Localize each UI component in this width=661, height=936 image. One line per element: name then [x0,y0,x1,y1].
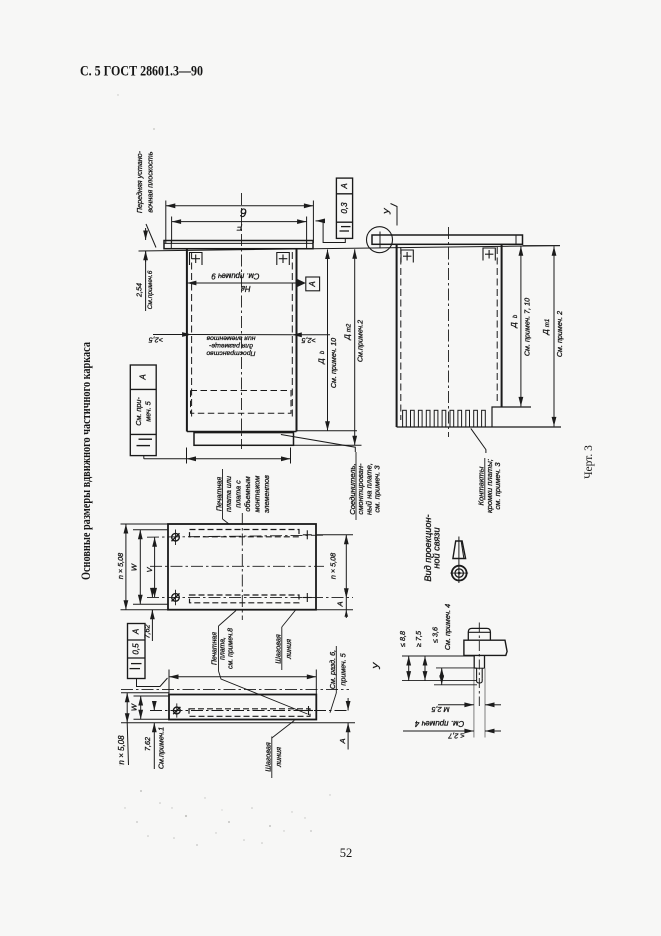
svg-text:7,62: 7,62 [142,625,151,639]
svg-text:0,5: 0,5 [132,643,141,655]
svg-text:см. примеч. 3: см. примеч. 3 [373,465,382,513]
svg-text:См. примеч 9: См. примеч 9 [211,272,260,281]
svg-text:Шаговая: Шаговая [264,742,273,772]
svg-text:плата с: плата с [234,480,243,508]
svg-text:См. примеч. 2: См. примеч. 2 [555,311,564,357]
svg-text:для размеще-: для размеще- [208,342,253,350]
svg-text:≤ 3,6: ≤ 3,6 [431,627,440,643]
svg-text:См.примеч.2: См.примеч.2 [356,320,365,362]
svg-text:0,3: 0,3 [340,202,349,214]
svg-text:примеч. 5: примеч. 5 [339,652,348,685]
svg-text:A: A [338,738,347,744]
svg-text:т1: т1 [545,319,551,327]
svg-text:A: A [340,183,349,189]
svg-text:≥ 7,5: ≥ 7,5 [414,630,423,647]
svg-text:См. примеч. 10: См. примеч. 10 [329,338,338,388]
svg-text:См. примеч 4: См. примеч 4 [414,719,464,728]
svg-text:≤ 2,7: ≤ 2,7 [447,732,464,741]
svg-text:W: W [130,703,139,711]
svg-text:см. примеч. 3: см. примеч. 3 [493,462,502,510]
svg-text:плата,: плата, [220,637,227,660]
svg-text:A: A [335,601,344,607]
svg-text:A: A [308,281,317,287]
svg-text:52: 52 [340,846,353,860]
svg-text:линия: линия [274,747,283,768]
svg-text:См. примеч. 7, 10: См. примеч. 7, 10 [523,298,532,356]
svg-text:См. примеч. 4: См. примеч. 4 [443,604,452,650]
svg-text:Передняя устано-: Передняя устано- [135,150,144,213]
svg-text:ния элементов: ния элементов [206,335,255,342]
svg-text:плата или: плата или [224,476,233,512]
svg-text:вочная плоскость: вочная плоскость [145,151,154,212]
svg-text:7,62: 7,62 [143,737,152,751]
svg-text:М 2,5: М 2,5 [431,705,450,714]
svg-text:монтажом: монтажом [253,476,262,513]
svg-text:См. при-: См. при- [134,397,143,426]
svg-text:6: 6 [240,206,247,220]
svg-text:2,54: 2,54 [135,283,144,298]
svg-text:F: F [236,223,242,233]
svg-text:Пространство: Пространство [206,350,255,357]
svg-text:С. 5 ГОСТ 28601.3—90: С. 5 ГОСТ 28601.3—90 [80,63,203,79]
svg-text:Черт. 3: Черт. 3 [583,445,595,479]
svg-text:Д: Д [343,334,352,341]
svg-text:См.примеч.6: См.примеч.6 [147,270,154,309]
svg-text:Печатная: Печатная [212,632,219,665]
svg-text:Д: Д [541,329,550,336]
svg-text:ной связи: ной связи [432,527,442,568]
svg-text:A: A [139,374,148,380]
svg-text:Шаговая: Шаговая [274,634,283,664]
svg-text:Основные размеры вдвижного час: Основные размеры вдвижного частичного ка… [79,341,93,580]
svg-text:См.примеч.1: См.примеч.1 [156,727,165,769]
svg-text:W: W [129,563,138,571]
svg-text:>2,5: >2,5 [148,335,163,344]
svg-text:линия: линия [284,639,293,660]
svg-text:объемным: объемным [243,476,252,511]
svg-text:n × 5,08: n × 5,08 [116,553,125,579]
svg-text:т2: т2 [347,323,353,332]
svg-text:n × 5,08: n × 5,08 [328,553,337,579]
svg-text:см. примеч.8: см. примеч.8 [228,628,235,669]
svg-text:Д: Д [509,322,518,329]
svg-text:Нв: Нв [241,284,251,293]
svg-text:элементов: элементов [262,475,271,513]
svg-text:n × 5,08: n × 5,08 [117,735,126,765]
svg-text:A: A [132,629,141,635]
svg-text:меч. 5: меч. 5 [144,400,153,421]
svg-text:>2,5: >2,5 [301,336,316,345]
svg-text:≤ 8,8: ≤ 8,8 [398,631,407,647]
svg-text:Д: Д [316,358,325,365]
svg-text:См. разд. 6,: См. разд. 6, [328,650,337,689]
